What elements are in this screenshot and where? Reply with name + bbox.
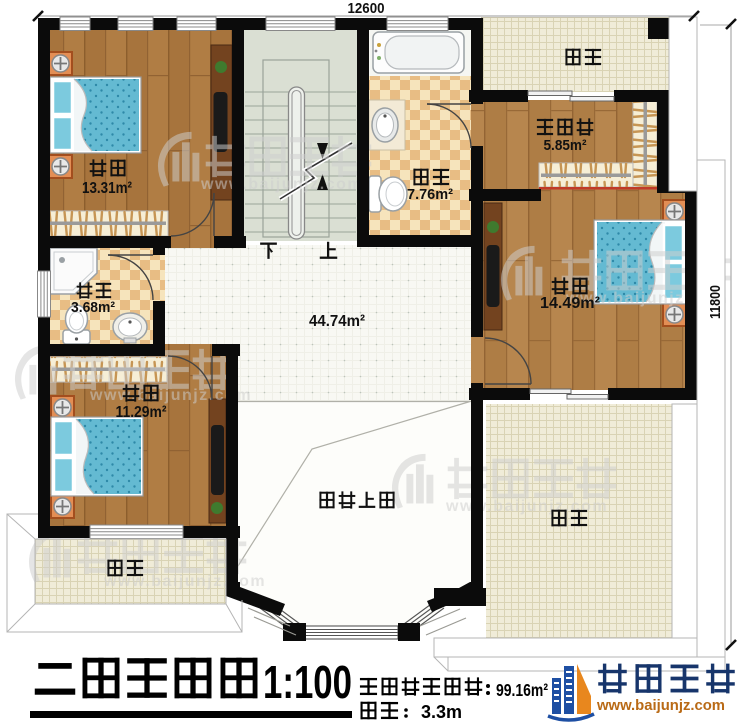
svg-text:99.16m²: 99.16m² [496, 680, 548, 700]
svg-text:13.31m²: 13.31m² [82, 180, 132, 197]
svg-text:12600: 12600 [348, 0, 385, 17]
svg-text:14.49m²: 14.49m² [540, 295, 600, 312]
svg-text:3.3m: 3.3m [421, 702, 462, 722]
svg-text:44.74m²: 44.74m² [309, 313, 365, 330]
svg-text:11800: 11800 [707, 285, 724, 319]
svg-text:5.85m²: 5.85m² [544, 137, 587, 154]
svg-text:www.baijunjz.com: www.baijunjz.com [445, 498, 608, 515]
svg-text:7.76m²: 7.76m² [407, 186, 453, 203]
svg-text:www.baijunjz.com: www.baijunjz.com [200, 176, 363, 193]
svg-text:11.29m²: 11.29m² [116, 404, 167, 421]
svg-text:1:100: 1:100 [263, 656, 352, 708]
svg-text:www.baijunjz.com: www.baijunjz.com [596, 697, 725, 714]
svg-text:3.68m²: 3.68m² [71, 299, 115, 316]
